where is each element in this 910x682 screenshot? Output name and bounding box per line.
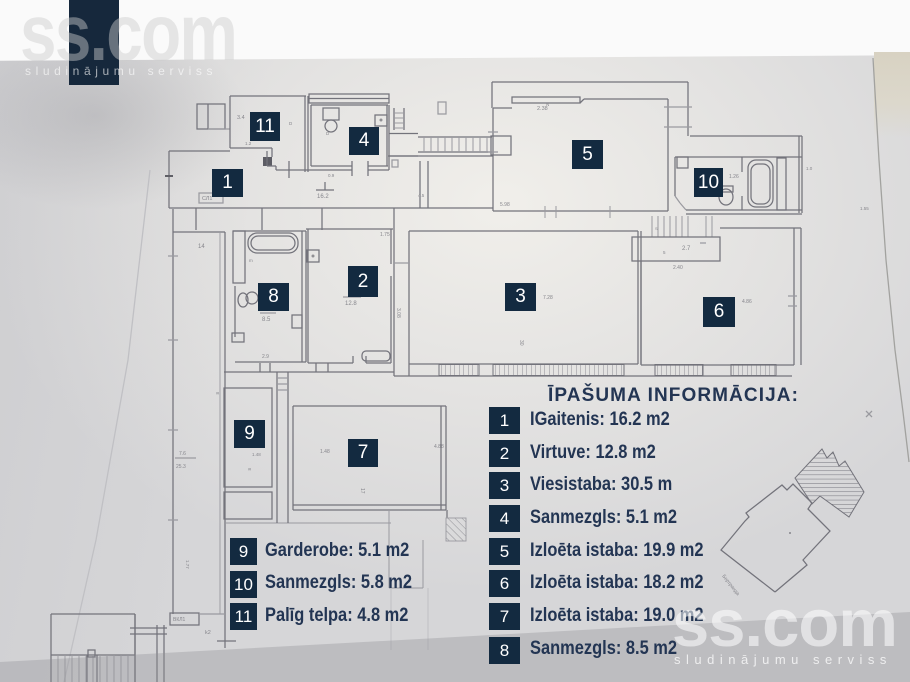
svg-text:ВКЛ1: ВКЛ1: [173, 617, 186, 623]
svg-text:12.8: 12.8: [345, 301, 357, 307]
svg-text:2.40: 2.40: [673, 265, 683, 271]
svg-text:4.5: 4.5: [418, 193, 425, 198]
svg-text:1.77: 1.77: [185, 560, 190, 569]
svg-text:m: m: [249, 258, 253, 263]
svg-text:1.2: 1.2: [245, 141, 252, 146]
svg-text:D: D: [289, 121, 293, 126]
svg-text:7.6: 7.6: [179, 451, 186, 457]
svg-text:16.2: 16.2: [317, 194, 329, 200]
svg-text:1.26: 1.26: [729, 174, 739, 180]
svg-text:4.86: 4.86: [742, 299, 752, 305]
svg-text:1.0: 1.0: [806, 166, 813, 171]
svg-text:2.9: 2.9: [262, 354, 269, 360]
svg-text:0.9: 0.9: [328, 173, 335, 178]
svg-text:1.55: 1.55: [860, 206, 869, 211]
svg-text:1.48: 1.48: [320, 449, 330, 455]
svg-text:3.08: 3.08: [395, 308, 401, 318]
svg-text:30: 30: [518, 340, 524, 346]
svg-text:8.5: 8.5: [262, 317, 271, 323]
svg-text:СЛ1: СЛ1: [202, 196, 212, 202]
svg-text:3.4: 3.4: [237, 115, 245, 121]
svg-text:7.28: 7.28: [543, 295, 553, 301]
svg-text:4.88: 4.88: [434, 444, 444, 450]
svg-text:17: 17: [359, 488, 365, 494]
svg-text:8: 8: [247, 468, 252, 471]
svg-text:14: 14: [198, 244, 205, 250]
svg-text:1.75: 1.75: [380, 232, 390, 238]
svg-text:25.3: 25.3: [176, 464, 186, 470]
svg-text:2.7: 2.7: [682, 246, 691, 252]
svg-text:5.98: 5.98: [500, 202, 510, 208]
svg-text:8: 8: [215, 392, 220, 395]
svg-text:k2: k2: [205, 630, 211, 636]
svg-text:1.48: 1.48: [252, 452, 261, 457]
svg-text:5: 5: [663, 250, 666, 255]
svg-text:S: S: [655, 226, 658, 231]
svg-text:N: N: [546, 102, 549, 107]
